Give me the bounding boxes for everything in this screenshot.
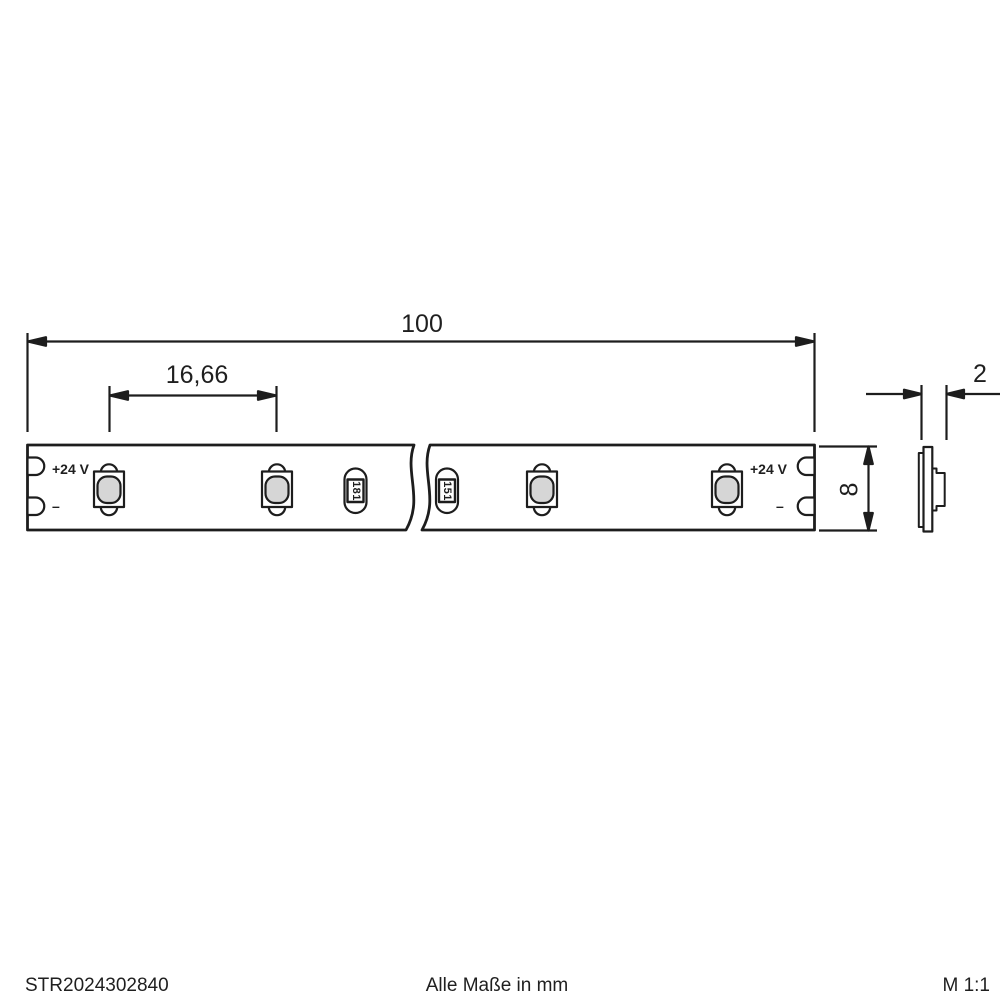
- led-lens: [266, 477, 289, 504]
- led-profile-bump: [932, 469, 945, 511]
- led-chip-2: [262, 464, 292, 515]
- pad-positive-left: [28, 458, 45, 476]
- led-lens: [716, 477, 739, 504]
- arrowhead-left: [947, 390, 965, 399]
- led-lens: [98, 477, 121, 504]
- dimension-label-width: 8: [838, 476, 863, 504]
- terminal-label-negative-left: –: [52, 498, 60, 514]
- arrowhead-right: [796, 337, 814, 346]
- terminal-label-positive-right: +24 V: [750, 461, 787, 477]
- led-strip-dimension-drawing: 100 16,66 2 8 +24 V – +24 V – 181 151 ST…: [0, 0, 1000, 1000]
- scale-indicator: M 1:1: [900, 975, 990, 997]
- dimension-label-led-pitch: 16,66: [155, 361, 239, 390]
- dimension-strip-thickness: [866, 385, 1000, 440]
- pad-positive-right: [798, 458, 815, 476]
- led-chip-3: [527, 464, 557, 515]
- article-number: STR2024302840: [25, 975, 169, 997]
- pad-negative-left: [28, 498, 45, 516]
- arrowhead-left: [110, 391, 128, 400]
- pad-negative-right: [798, 498, 815, 516]
- dimension-led-pitch: [110, 386, 277, 432]
- strip-side-view: [919, 447, 945, 532]
- arrowhead-down: [864, 513, 873, 531]
- terminal-label-negative-right: –: [776, 498, 784, 514]
- dimension-label-total-length: 100: [390, 310, 454, 339]
- arrowhead-up: [864, 447, 873, 465]
- arrowhead-left: [28, 337, 46, 346]
- led-chip-1: [94, 464, 124, 515]
- resistor-marking-2: 151: [436, 476, 458, 506]
- strip-body: [28, 445, 815, 530]
- dimension-label-thickness: 2: [960, 360, 1000, 389]
- pcb-profile-bar: [924, 447, 933, 532]
- resistor-marking-1: 181: [345, 476, 367, 506]
- led-lens: [531, 477, 554, 504]
- terminal-label-positive-left: +24 V: [52, 461, 89, 477]
- units-note: Alle Maße in mm: [397, 975, 597, 997]
- strip-segment-right: [422, 445, 815, 530]
- arrowhead-right: [258, 391, 276, 400]
- dimension-total-length: [28, 333, 815, 432]
- led-chip-4: [712, 464, 742, 515]
- arrowhead-right: [904, 390, 922, 399]
